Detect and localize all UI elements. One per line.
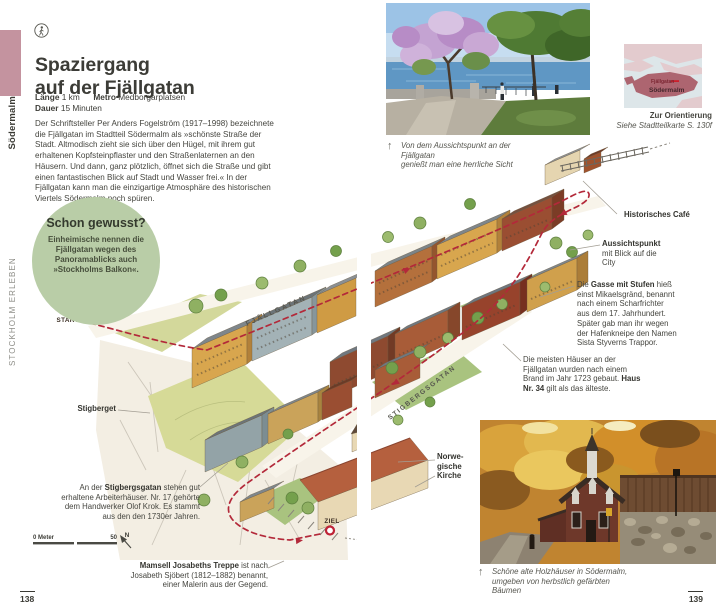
minimap-illustration: Fjällgatan Södermalm xyxy=(624,44,702,108)
metro-value: Medborgarplatsen xyxy=(118,92,185,102)
tour-meta: Länge 1 km Metro Medborgarplatsen Dauer … xyxy=(35,92,185,114)
annotation-viewpoint: Aussichtspunkt mit Blick auf die City xyxy=(602,239,668,268)
orientation-caption-ref: Siehe Stadtteilkarte S. 130f xyxy=(560,121,712,131)
svg-text:N: N xyxy=(125,532,130,539)
length-label: Länge xyxy=(35,92,59,102)
annotation-historic-cafe: Historisches Café xyxy=(624,210,704,220)
annotation-workers-houses: An der Stigbergsgatan stehen gut erhalte… xyxy=(58,483,200,522)
orientation-caption-title: Zur Orientierung xyxy=(560,111,712,121)
annotation-stepped-alley: Die Gasse mit Stufen hieß einst Mikaelsg… xyxy=(577,280,677,348)
annotation-norwegian-church: Norwe- gische Kirche xyxy=(437,452,471,481)
duration-label: Dauer xyxy=(35,103,59,113)
svg-text:ZIEL: ZIEL xyxy=(324,518,339,525)
sidebar-chapter-label: Södermalm xyxy=(7,96,18,150)
svg-text:50: 50 xyxy=(110,535,117,541)
minimap-street-label: Fjällgatan xyxy=(651,79,674,85)
scale-bar: 0 Meter 50 xyxy=(33,535,118,544)
did-you-know-body: Einheimische nennen die Fjällgatan wegen… xyxy=(46,235,146,275)
guidebook-spread: START ZIEL FJÄLLGATAN STIGBERGSGATAN 0 M… xyxy=(0,0,720,610)
annotation-oldest-houses: Die meisten Häuser an der Fjällgatan wur… xyxy=(523,355,643,394)
tour-meta-line2: Dauer 15 Minuten xyxy=(35,103,185,114)
photo-top-caption-line2: genießt man eine herrliche Sicht xyxy=(401,160,535,170)
length-value: 1 km xyxy=(62,92,80,102)
did-you-know-title: Schon gewusst? xyxy=(32,217,160,231)
page-number-rule xyxy=(688,591,703,592)
photo-bottom-caption-line2: umgeben von herbstlich gefärbten Bäumen xyxy=(492,577,632,596)
photo-bottom-caption-line1: Schöne alte Holzhäuser in Södermalm, xyxy=(492,567,632,577)
intro-paragraph: Der Schriftsteller Per Anders Fogelström… xyxy=(35,119,283,205)
metro-label: Metro xyxy=(93,92,116,102)
did-you-know-circle: Schon gewusst? Einheimische nennen die F… xyxy=(32,197,160,325)
sidebar-vertical-label: STOCKHOLM ERLEBEN Södermalm xyxy=(3,96,21,366)
annotation-historic-cafe-text: Historisches Café xyxy=(624,210,690,219)
page-number-right: 139 xyxy=(672,591,703,604)
photo-bottom-illustration xyxy=(480,420,716,564)
orientation-caption: Zur Orientierung Siehe Stadtteilkarte S.… xyxy=(560,111,712,131)
page-number-left: 138 xyxy=(20,591,35,604)
duration-value: 15 Minuten xyxy=(61,103,102,113)
photo-bottom-caption: Schöne alte Holzhäuser in Södermalm, umg… xyxy=(492,567,632,596)
walking-tour-icon xyxy=(34,23,49,38)
tour-meta-line1: Länge 1 km Metro Medborgarplatsen xyxy=(35,92,185,103)
page-title-line1: Spaziergang xyxy=(35,54,195,77)
photo-top-caption-line1: Von dem Aussichtspunkt an der Fjällgatan xyxy=(401,141,535,160)
sidebar-color-tab xyxy=(0,30,21,96)
page-gutter xyxy=(357,148,371,562)
page-number-rule xyxy=(20,591,35,592)
svg-text:0 Meter: 0 Meter xyxy=(33,535,55,541)
minimap-district-label: Södermalm xyxy=(649,87,685,94)
sidebar-series-label: STOCKHOLM ERLEBEN xyxy=(8,257,17,366)
annotation-stigberget: Stigberget xyxy=(56,404,116,414)
photo-top-caption: Von dem Aussichtspunkt an der Fjällgatan… xyxy=(401,141,535,170)
caption-up-arrow-icon: ↑ xyxy=(387,140,393,152)
annotation-josabeth-stairs: Mamsell Josabeths Treppe ist nach Josabe… xyxy=(130,561,268,590)
photo-wooden-houses-autumn xyxy=(480,420,716,564)
caption-up-arrow-icon: ↑ xyxy=(478,566,484,578)
orientation-minimap: Fjällgatan Södermalm xyxy=(624,44,702,108)
